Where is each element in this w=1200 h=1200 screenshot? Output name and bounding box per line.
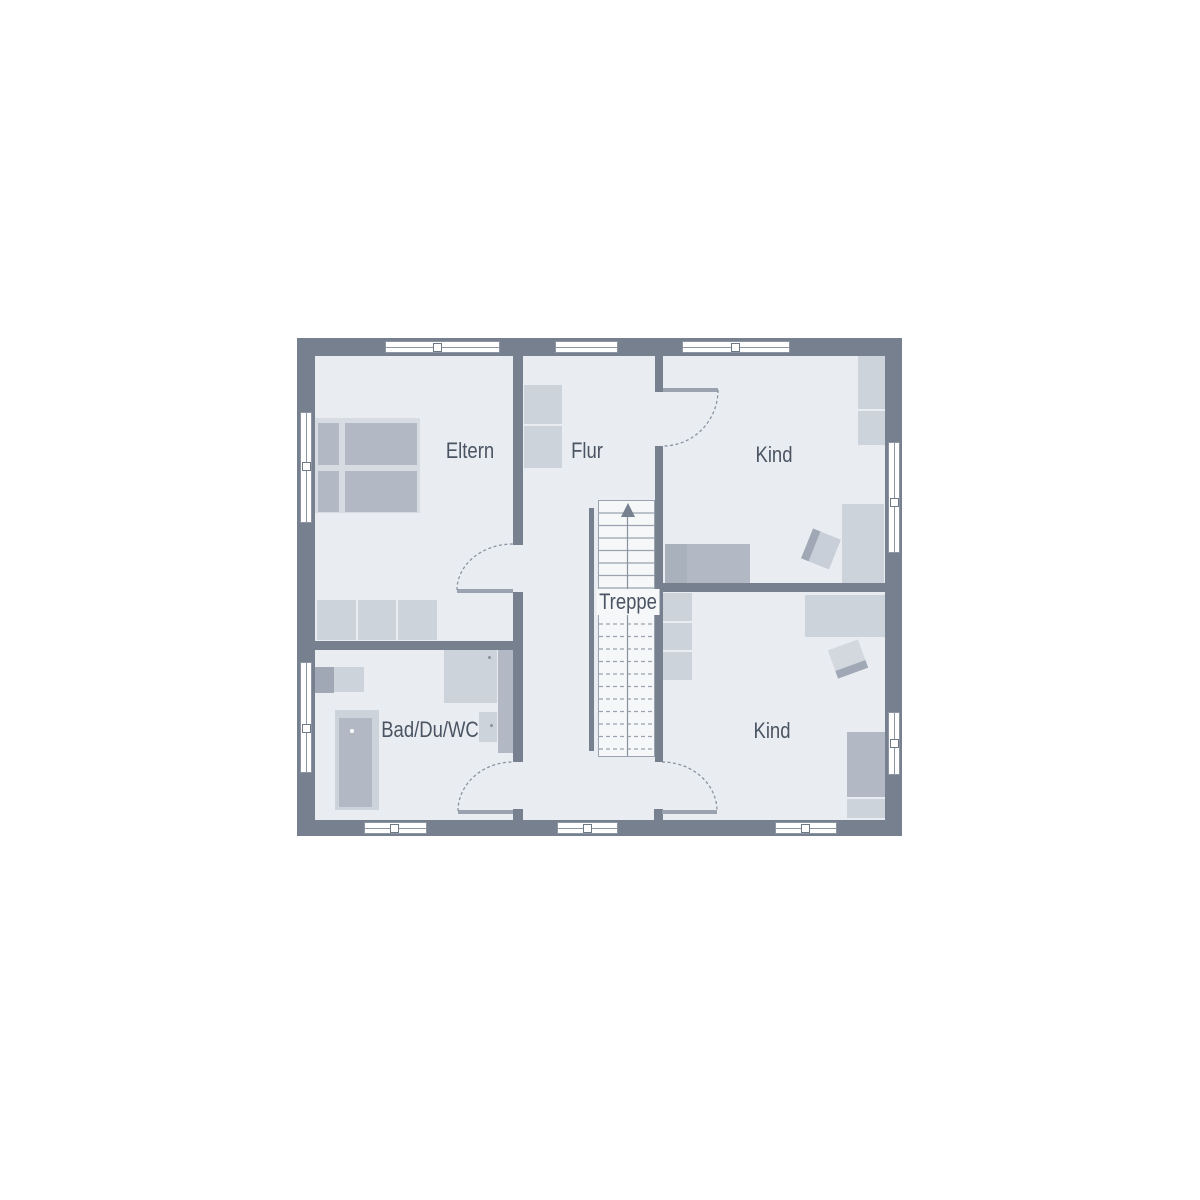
room-label-treppe: Treppe: [597, 589, 660, 615]
bath-vanity-cabinet: [315, 667, 334, 693]
shower-head: [488, 656, 491, 659]
window-handle: [302, 462, 311, 471]
door-leaf-bad: [458, 810, 513, 814]
wc-toilet: [479, 712, 497, 742]
bathtub-basin: [339, 718, 372, 807]
wardrobe-divider: [524, 424, 562, 426]
window-handle: [801, 824, 810, 833]
window-left-bad: [300, 662, 312, 773]
flur-wardrobe: [524, 385, 562, 468]
wardrobe-divider: [663, 650, 692, 652]
window-handle: [583, 824, 592, 833]
bath-tall-cabinet: [498, 648, 513, 753]
window-handle: [890, 498, 899, 507]
kind-bottom-desk: [805, 595, 885, 637]
bath-washbasin: [334, 667, 364, 692]
shower: [444, 650, 497, 703]
bed-mattress-bottom: [345, 471, 417, 512]
kind-top-desk: [842, 504, 884, 583]
bed-mattress-top: [345, 423, 417, 465]
door-leaf-kind-top: [663, 388, 718, 392]
partition-kind-kind: [663, 583, 885, 592]
room-label-bad: Bad/Du/WC: [381, 717, 479, 743]
window-top-eltern: [385, 341, 500, 353]
stair-handrail: [589, 508, 594, 751]
wardrobe-divider: [663, 621, 692, 623]
window-handle: [302, 724, 311, 733]
bed-pillow-bottom: [318, 471, 339, 512]
kind-top-bed-mattress: [687, 544, 750, 584]
room-label-eltern: Eltern: [446, 438, 494, 464]
kind-bottom-bed-mattress: [847, 732, 885, 797]
window-top-flur: [555, 341, 618, 353]
kind-top-bed-pillow: [665, 544, 687, 584]
staircase: [598, 500, 655, 757]
window-handle: [390, 824, 399, 833]
wardrobe-divider: [858, 409, 885, 411]
sideboard-divider: [396, 600, 398, 640]
room-label-kind-top: Kind: [756, 442, 793, 468]
wc-flush: [490, 724, 493, 727]
kind-top-wardrobe: [858, 356, 885, 445]
bathtub-drain: [350, 729, 354, 733]
door-leaf-eltern: [457, 589, 513, 593]
eltern-double-bed: [315, 418, 420, 513]
door-jamb-bad: [513, 809, 523, 820]
eltern-sideboard: [317, 600, 437, 640]
door-leaf-kind-bottom: [662, 810, 717, 814]
partition-bad-corridor: [513, 592, 523, 762]
bed-pillow-top: [318, 423, 339, 465]
window-handle: [433, 343, 442, 352]
room-label-kind-bottom: Kind: [754, 718, 791, 744]
window-handle: [890, 739, 899, 748]
kind-bottom-bed-pillow: [847, 799, 885, 818]
partition-flur-kind-upper: [655, 356, 663, 392]
floorplan-canvas: Eltern Flur Kind Treppe Bad/Du/WC Kind: [0, 0, 1200, 1200]
partition-eltern-flur-upper: [513, 356, 523, 545]
sideboard-divider: [356, 600, 358, 640]
window-handle: [731, 343, 740, 352]
kind-bottom-wardrobe: [663, 593, 692, 680]
room-label-flur: Flur: [571, 438, 603, 464]
bathtub: [335, 710, 379, 810]
partition-eltern-bad: [315, 641, 523, 650]
